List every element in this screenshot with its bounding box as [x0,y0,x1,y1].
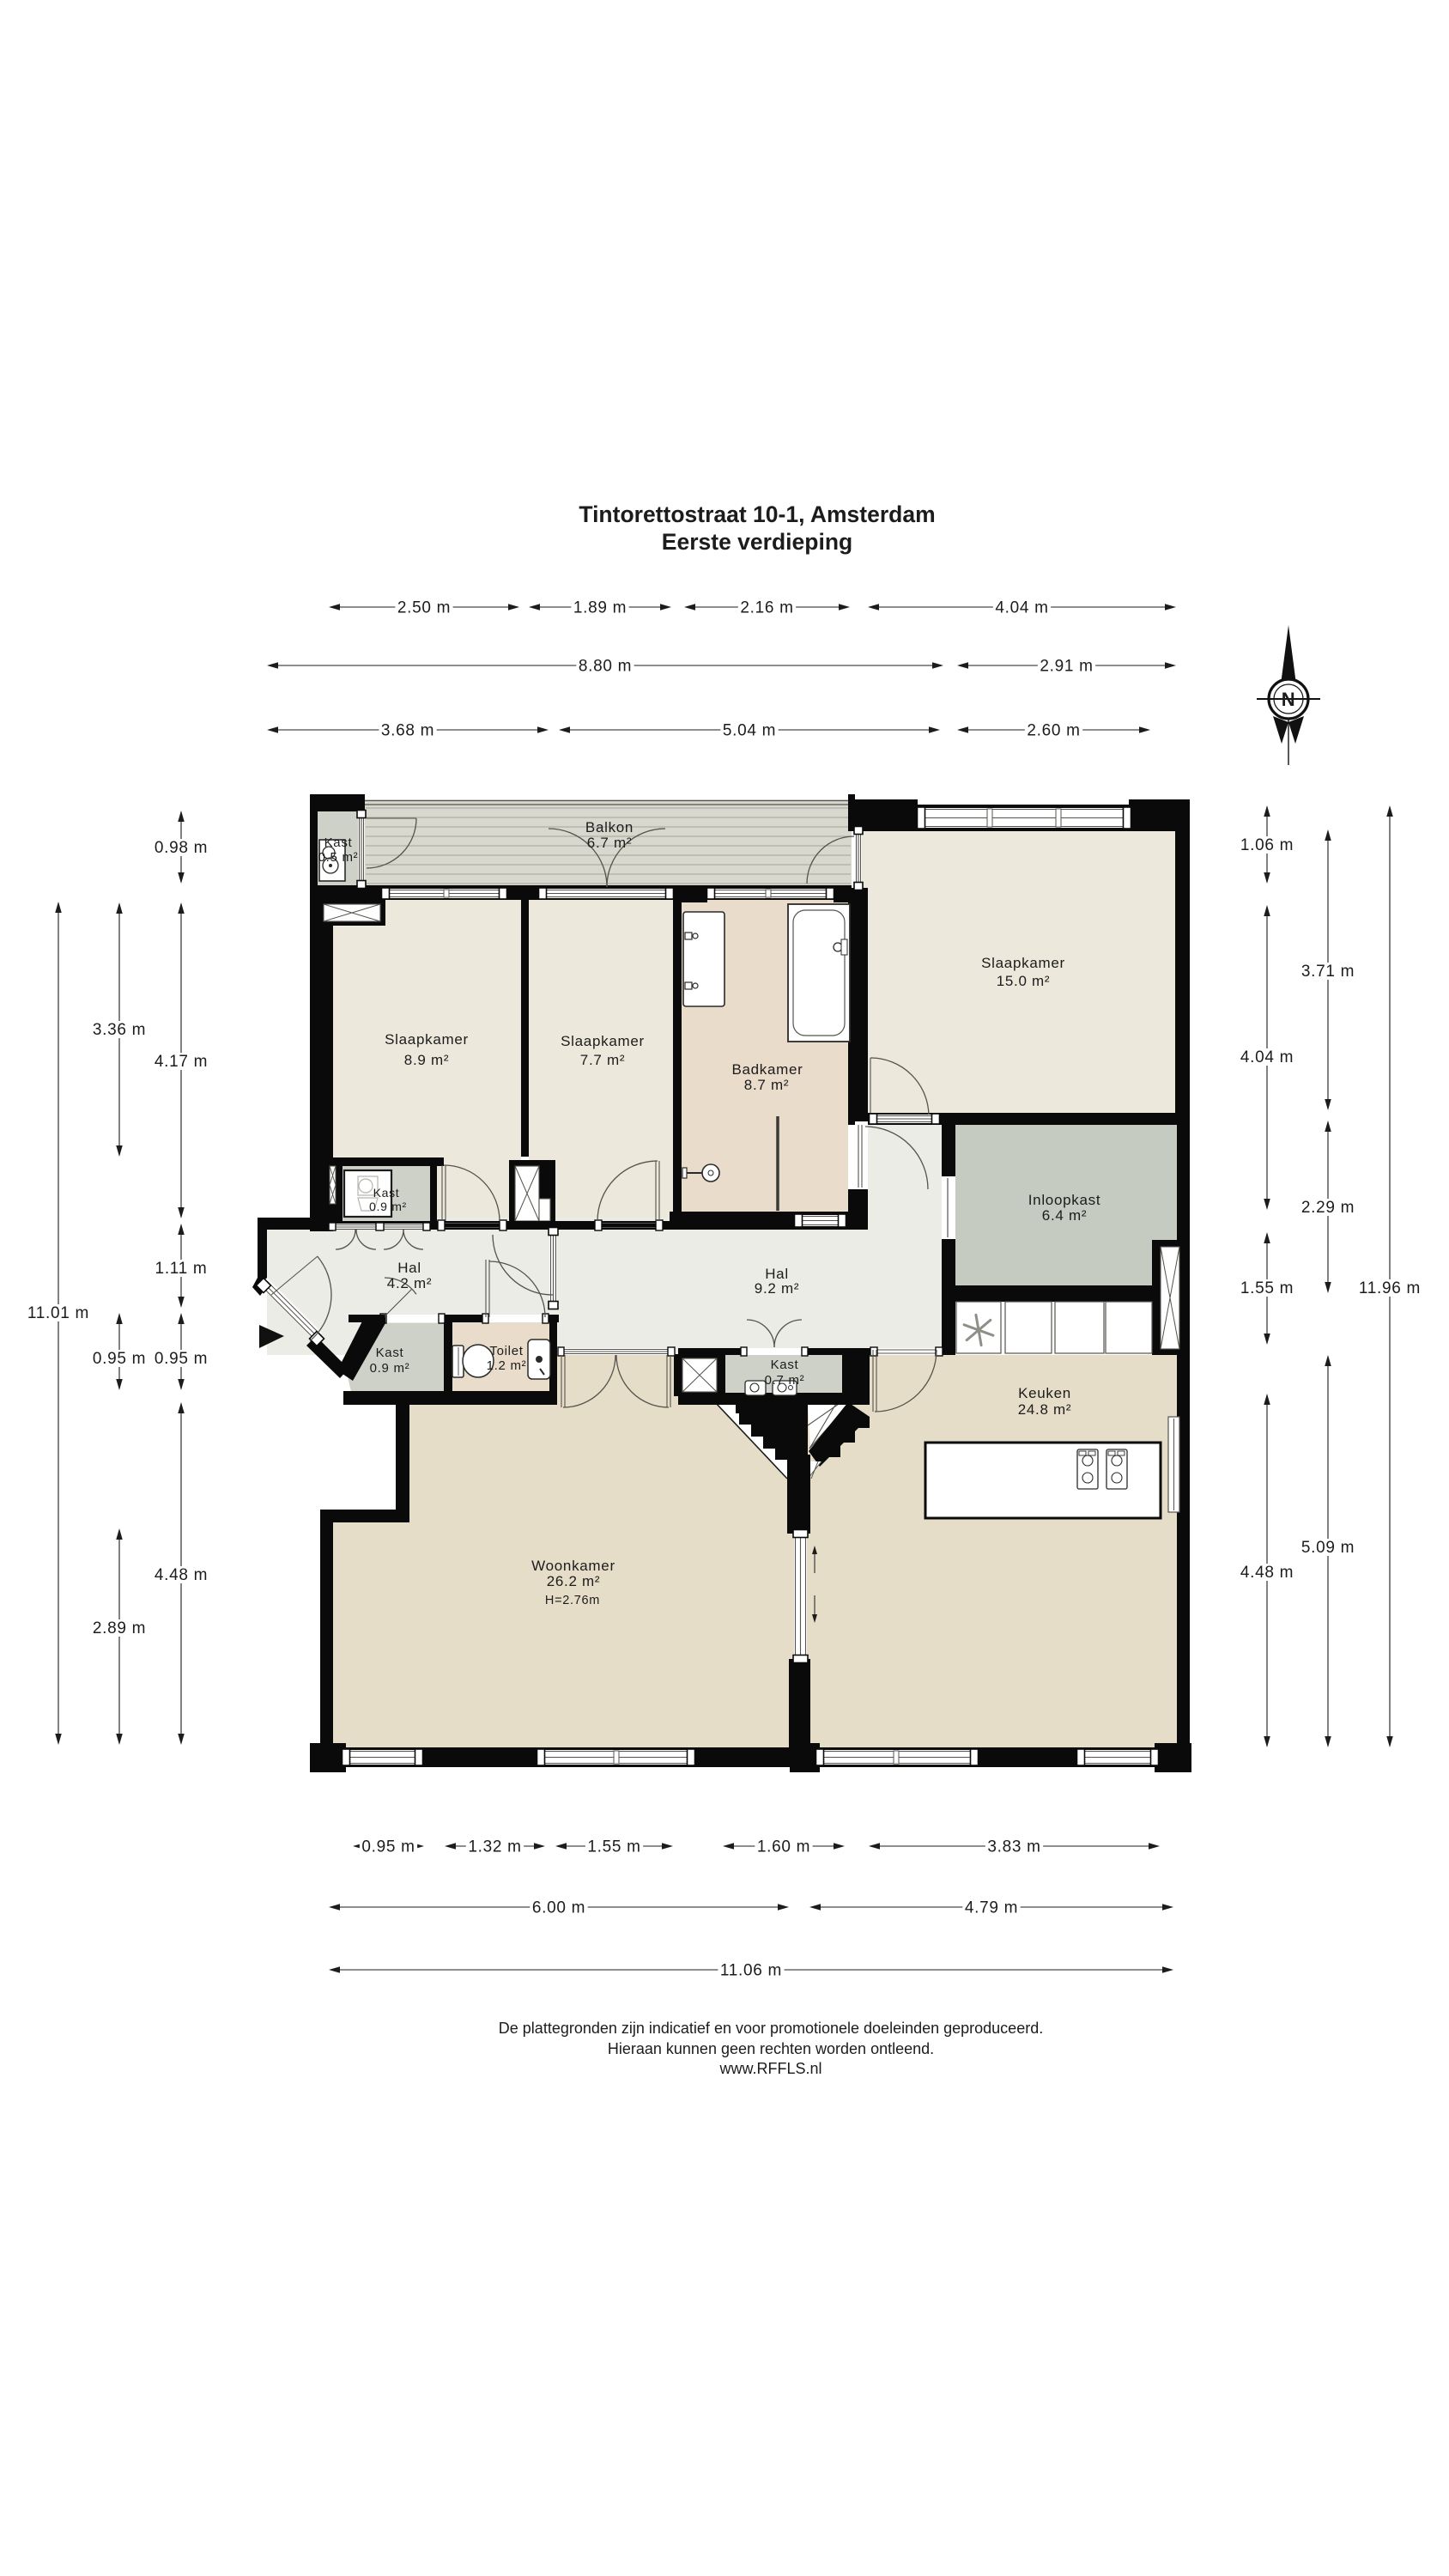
svg-text:Kast: Kast [771,1358,799,1372]
svg-text:9.2 m²: 9.2 m² [755,1280,799,1297]
svg-text:5.04 m: 5.04 m [723,722,776,740]
svg-text:8.7 m²: 8.7 m² [744,1077,789,1093]
svg-text:Eerste verdieping: Eerste verdieping [662,529,852,555]
svg-text:Woonkamer: Woonkamer [531,1558,615,1574]
svg-text:0.9 m²: 0.9 m² [370,1361,410,1376]
svg-text:0.95 m: 0.95 m [93,1350,146,1368]
svg-text:2.60 m: 2.60 m [1027,722,1080,740]
svg-text:1.89 m: 1.89 m [573,599,627,617]
svg-text:3.83 m: 3.83 m [987,1838,1040,1856]
svg-text:H=2.76m: H=2.76m [545,1594,600,1607]
svg-text:3.71 m: 3.71 m [1301,963,1355,981]
svg-text:Hal: Hal [397,1260,421,1276]
svg-text:15.0 m²: 15.0 m² [997,973,1051,989]
svg-text:0.95 m: 0.95 m [155,1350,208,1368]
svg-text:6.7 m²: 6.7 m² [587,835,632,851]
svg-text:Inloopkast: Inloopkast [1028,1192,1101,1208]
svg-text:1.55 m: 1.55 m [1240,1279,1294,1297]
svg-text:11.01 m: 11.01 m [27,1304,89,1322]
svg-text:4.48 m: 4.48 m [1240,1564,1294,1582]
svg-text:2.89 m: 2.89 m [93,1619,146,1637]
svg-text:2.91 m: 2.91 m [1040,658,1093,676]
svg-text:1.2 m²: 1.2 m² [487,1358,527,1373]
svg-text:Slaapkamer: Slaapkamer [385,1031,469,1048]
svg-text:5.09 m: 5.09 m [1301,1539,1355,1557]
svg-text:3.36 m: 3.36 m [93,1021,146,1039]
svg-text:4.04 m: 4.04 m [995,599,1048,617]
svg-text:26.2 m²: 26.2 m² [547,1573,601,1589]
svg-text:2.50 m: 2.50 m [397,599,451,617]
svg-text:4.79 m: 4.79 m [965,1899,1018,1917]
svg-text:Hieraan kunnen geen rechten wo: Hieraan kunnen geen rechten worden ontle… [608,2040,934,2057]
svg-text:N: N [1282,689,1296,710]
svg-text:1.06 m: 1.06 m [1240,836,1294,854]
svg-text:Toilet: Toilet [489,1344,523,1358]
svg-text:24.8 m²: 24.8 m² [1018,1401,1072,1418]
svg-text:2.16 m: 2.16 m [740,599,793,617]
svg-text:Kast: Kast [373,1186,400,1200]
svg-text:Kast: Kast [324,835,353,850]
svg-text:0.9 m²: 0.9 m² [369,1200,407,1213]
svg-text:11.96 m: 11.96 m [1359,1279,1421,1297]
svg-text:0.7 m²: 0.7 m² [765,1373,805,1388]
svg-text:Slaapkamer: Slaapkamer [981,955,1065,971]
svg-text:7.7 m²: 7.7 m² [580,1052,625,1068]
svg-text:6.4 m²: 6.4 m² [1042,1207,1087,1224]
svg-text:3.68 m: 3.68 m [381,722,434,740]
svg-text:4.04 m: 4.04 m [1240,1048,1294,1066]
svg-text:De plattegronden zijn indicati: De plattegronden zijn indicatief en voor… [499,2020,1043,2037]
svg-text:0.95 m: 0.95 m [361,1838,415,1856]
svg-text:4.17 m: 4.17 m [155,1053,208,1071]
svg-text:1.32 m: 1.32 m [468,1838,521,1856]
svg-text:4.2 m²: 4.2 m² [387,1275,432,1291]
svg-text:8.80 m: 8.80 m [579,658,632,676]
svg-text:11.06 m: 11.06 m [720,1962,782,1980]
svg-text:4.48 m: 4.48 m [155,1566,208,1584]
svg-text:1.11 m: 1.11 m [155,1260,208,1278]
svg-text:Slaapkamer: Slaapkamer [561,1033,645,1049]
svg-text:Keuken: Keuken [1018,1385,1071,1401]
svg-text:1.55 m: 1.55 m [587,1838,640,1856]
svg-text:2.29 m: 2.29 m [1301,1199,1355,1217]
svg-text:www.RFFLS.nl: www.RFFLS.nl [718,2060,822,2077]
svg-text:0.98 m: 0.98 m [155,839,208,857]
svg-text:1.60 m: 1.60 m [757,1838,810,1856]
svg-text:8.9 m²: 8.9 m² [404,1052,449,1068]
svg-text:Badkamer: Badkamer [731,1061,803,1078]
svg-text:Tintorettostraat 10-1, Amsterd: Tintorettostraat 10-1, Amsterdam [579,501,935,527]
svg-text:0.5 m²: 0.5 m² [318,850,359,865]
svg-text:6.00 m: 6.00 m [532,1899,585,1917]
svg-text:Kast: Kast [376,1346,404,1360]
svg-text:Balkon: Balkon [585,819,634,835]
